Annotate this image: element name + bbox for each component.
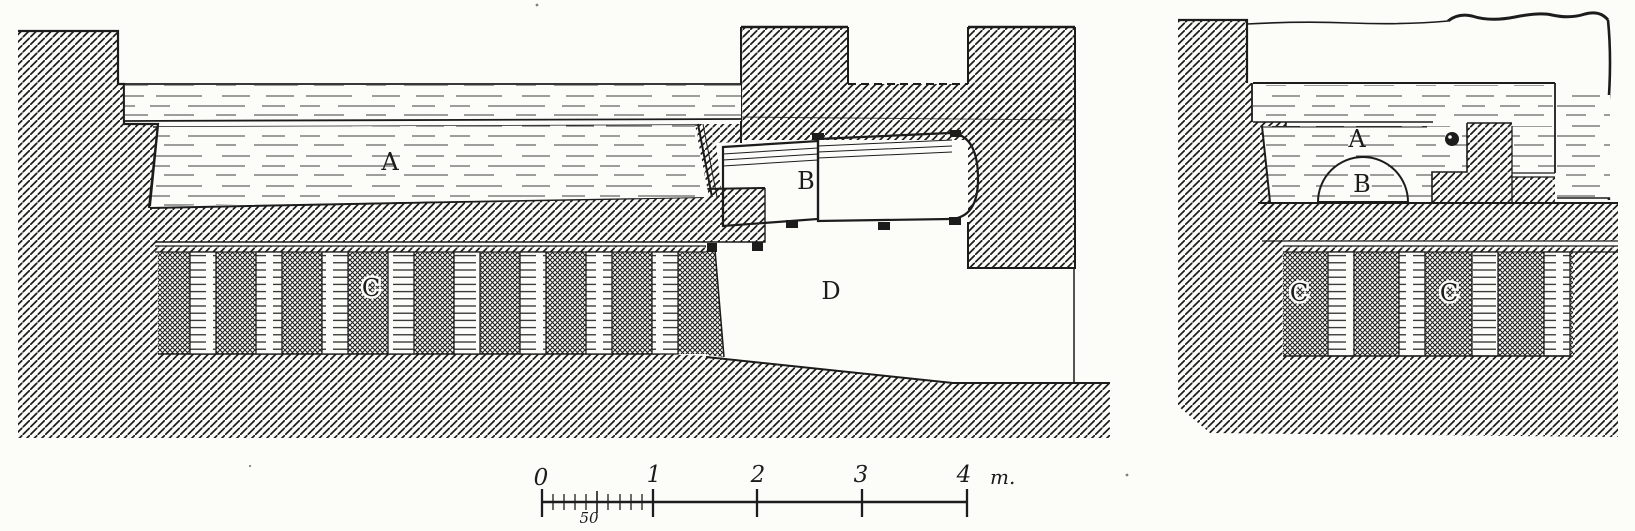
suspensura-tile-band [155,246,706,252]
scale-unit-label: m. [990,465,1015,489]
label-furnace-d: D [821,277,840,305]
right-ground-mass [1178,356,1618,437]
scale-tick-3: 3 [854,462,869,488]
basin-a [150,125,709,206]
label-right-hypocaust-c-right: C [1440,279,1458,307]
label-right-dome-b: B [1353,170,1371,198]
scale-tick-4: 4 [956,462,972,488]
left-panel-longitudinal-section: A B C D [18,27,1110,438]
right-floor-structure [1258,203,1618,252]
label-right-basin-a: A [1347,125,1366,153]
upper-water-channel [124,84,741,127]
engraving-figure: A B C D [0,0,1635,531]
section-drawing: A B C D [0,0,1635,531]
pipe-outlet-dot [1445,132,1459,146]
scale-bar: 0 1 2 3 4 m. 50 [534,462,1016,527]
scale-tick-2: 2 [750,462,766,488]
right-panel-transverse-section: A B C C [1178,13,1618,437]
label-right-hypocaust-c-left: C [1290,279,1308,307]
boiler-vessel-right [818,133,978,221]
label-basin-a: A [380,148,399,176]
scale-tick-0: 0 [534,465,549,491]
hypocaust-pillars [158,250,724,357]
scale-tick-1: 1 [647,462,662,488]
scale-subdivision-label: 50 [579,509,599,527]
label-boiler-b: B [797,167,815,195]
label-hypocaust-c: C [362,274,380,302]
